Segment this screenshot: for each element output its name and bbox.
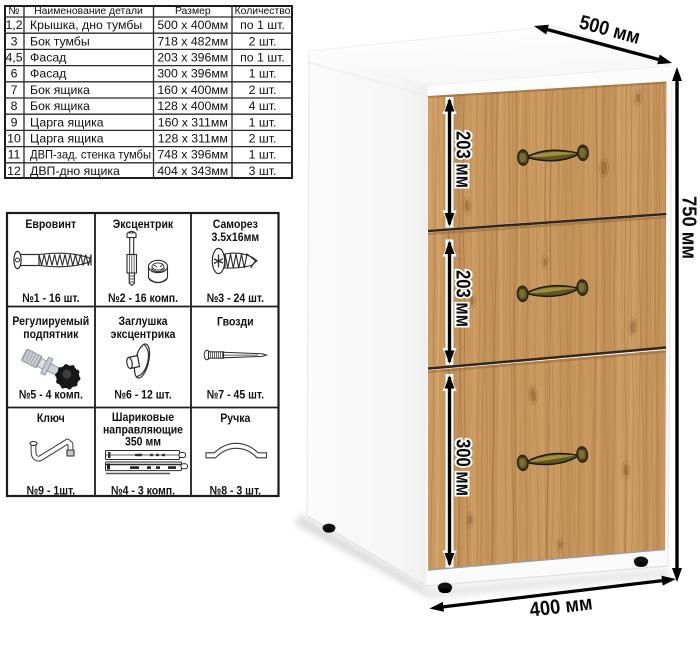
svg-text:№5 - 4 комп.: №5 - 4 комп. — [19, 388, 83, 402]
svg-text:Царга ящика: Царга ящика — [30, 132, 104, 146]
svg-text:2 шт.: 2 шт. — [249, 34, 277, 48]
svg-text:750 мм: 750 мм — [678, 196, 700, 259]
svg-text:Евровинт: Евровинт — [25, 217, 76, 231]
svg-text:Регулируемый: Регулируемый — [12, 314, 89, 328]
svg-text:350 мм: 350 мм — [125, 435, 161, 449]
svg-text:ДВП-дно ящика: ДВП-дно ящика — [30, 164, 120, 178]
svg-text:Заглушка: Заглушка — [119, 314, 168, 328]
svg-text:1,2: 1,2 — [5, 18, 22, 32]
svg-text:по 1 шт.: по 1 шт. — [240, 18, 285, 32]
svg-text:Фасад: Фасад — [30, 67, 66, 81]
svg-text:Царга ящика: Царга ящика — [30, 115, 104, 129]
svg-text:300 x 396мм: 300 x 396мм — [157, 67, 228, 81]
svg-text:Наименование детали: Наименование детали — [34, 6, 143, 17]
svg-text:718 x 482мм: 718 x 482мм — [157, 34, 228, 48]
svg-text:Ручка: Ручка — [220, 411, 250, 425]
svg-text:1 шт.: 1 шт. — [249, 67, 277, 81]
svg-text:4 шт.: 4 шт. — [249, 99, 277, 113]
svg-text:Бок ящика: Бок ящика — [30, 99, 90, 113]
svg-text:Размер: Размер — [175, 6, 211, 17]
svg-text:№7 - 45 шт.: №7 - 45 шт. — [207, 388, 264, 402]
svg-text:Количество: Количество — [235, 6, 291, 17]
svg-text:№9 - 1шт.: №9 - 1шт. — [26, 484, 75, 498]
svg-text:по 1 шт.: по 1 шт. — [240, 51, 285, 65]
svg-text:9: 9 — [11, 115, 18, 129]
svg-text:подпятник: подпятник — [23, 327, 79, 341]
svg-text:эксцентрика: эксцентрика — [111, 327, 176, 341]
svg-text:№1 - 16 шт.: №1 - 16 шт. — [22, 291, 79, 305]
svg-text:№3 - 24 шт.: №3 - 24 шт. — [207, 291, 264, 305]
svg-text:8: 8 — [11, 99, 18, 113]
svg-text:6: 6 — [11, 67, 18, 81]
svg-text:Бок ящика: Бок ящика — [30, 83, 90, 97]
svg-text:12: 12 — [7, 164, 21, 178]
svg-text:7: 7 — [11, 83, 18, 97]
svg-text:203 мм: 203 мм — [452, 131, 474, 188]
svg-text:128 x 400мм: 128 x 400мм — [157, 99, 228, 113]
svg-text:№4 - 3 комп.: №4 - 3 комп. — [111, 484, 175, 498]
svg-text:404 x 343мм: 404 x 343мм — [157, 164, 228, 178]
svg-text:4,5: 4,5 — [5, 51, 22, 65]
svg-text:128 x 311мм: 128 x 311мм — [158, 132, 228, 146]
svg-text:160 x 400мм: 160 x 400мм — [157, 83, 228, 97]
svg-text:160 x 311мм: 160 x 311мм — [158, 115, 228, 129]
svg-text:Фасад: Фасад — [30, 51, 66, 65]
svg-text:ДВП-зад. стенка тумбы: ДВП-зад. стенка тумбы — [30, 148, 151, 162]
svg-text:1 шт.: 1 шт. — [249, 115, 277, 129]
svg-text:№: № — [8, 6, 19, 17]
svg-text:№6 - 12 шт.: №6 - 12 шт. — [114, 388, 171, 402]
svg-text:11: 11 — [8, 148, 21, 162]
svg-text:Саморез: Саморез — [213, 217, 258, 231]
svg-text:748 x 396мм: 748 x 396мм — [157, 148, 228, 162]
svg-text:500 x 400мм: 500 x 400мм — [157, 18, 228, 32]
svg-text:3: 3 — [11, 34, 18, 48]
svg-text:№8 - 3 шт.: №8 - 3 шт. — [210, 484, 262, 498]
svg-text:3 шт.: 3 шт. — [249, 164, 277, 178]
svg-text:3.5х16мм: 3.5х16мм — [211, 230, 259, 244]
svg-text:300 мм: 300 мм — [452, 439, 474, 496]
svg-text:2 шт.: 2 шт. — [249, 132, 277, 146]
svg-text:Эксцентрик: Эксцентрик — [113, 217, 174, 231]
svg-text:Бок тумбы: Бок тумбы — [30, 34, 90, 48]
svg-text:2 шт.: 2 шт. — [249, 83, 277, 97]
svg-text:Ключ: Ключ — [37, 411, 65, 425]
svg-text:Крышка, дно тумбы: Крышка, дно тумбы — [30, 18, 142, 32]
svg-text:10: 10 — [7, 132, 21, 146]
svg-text:№2 - 16 комп.: №2 - 16 комп. — [108, 291, 178, 305]
svg-text:Гвозди: Гвозди — [217, 315, 254, 329]
svg-text:1 шт.: 1 шт. — [249, 148, 277, 162]
svg-text:203 x 396мм: 203 x 396мм — [157, 51, 228, 65]
svg-text:203 мм: 203 мм — [452, 270, 474, 327]
